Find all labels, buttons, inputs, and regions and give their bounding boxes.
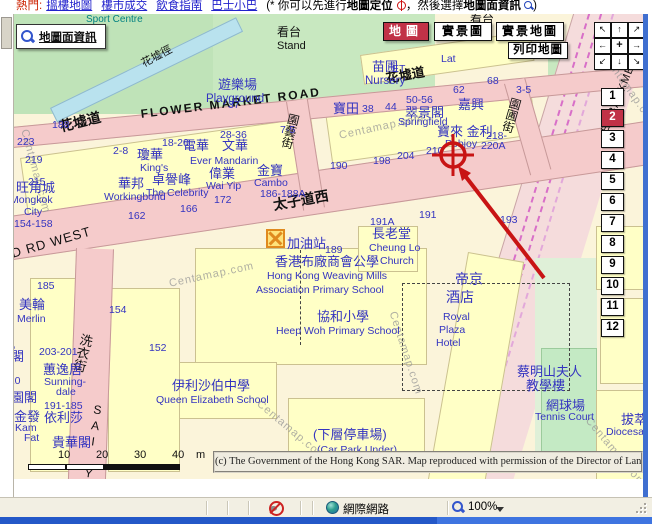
security-zone-label: 網際網路 — [343, 501, 389, 517]
zoom-level-button-11[interactable]: 11 — [601, 298, 624, 316]
scale-unit: m — [196, 449, 205, 461]
note-bold-locate: 地圖定位 — [347, 0, 393, 12]
note-bold-mapinfo: 地圖面資訊 — [463, 0, 521, 12]
zoom-level-button-12[interactable]: 12 — [601, 319, 624, 337]
crosshair-icon — [396, 0, 406, 10]
zoom-level-button-3[interactable]: 3 — [601, 130, 624, 148]
pan-button-2[interactable]: ↗ — [628, 22, 643, 38]
map-layer: Centamap.comCentamap.comCentamap.comCent… — [14, 14, 643, 479]
map-viewport[interactable]: Centamap.comCentamap.comCentamap.comCent… — [14, 14, 643, 479]
statusbar-separator — [248, 501, 250, 515]
internet-zone-icon — [326, 501, 339, 514]
pan-button-0[interactable]: ↖ — [594, 22, 611, 38]
zoom-level-button-6[interactable]: 6 — [601, 193, 624, 211]
statusbar-separator — [227, 501, 229, 515]
real-map-button[interactable]: 實景地圖 — [496, 22, 564, 41]
pan-button-4[interactable]: + — [611, 38, 628, 54]
popup-blocked-icon — [268, 500, 283, 515]
taskbar-segment — [437, 517, 652, 524]
statusbar-separator — [447, 501, 449, 515]
link-dining-guide[interactable]: 飲食指南 — [156, 0, 202, 12]
note-end: ) — [533, 0, 537, 12]
zoom-level-button-2[interactable]: 2 — [601, 109, 624, 127]
scale-tick: 10 — [58, 449, 70, 461]
zoom-dropdown-caret[interactable] — [496, 507, 504, 512]
status-bar: 網際網路 100% — [0, 497, 652, 517]
magnifier-icon — [21, 30, 35, 44]
top-links-bar: 熱門:搵樓地圖樓市成交飲食指南巴士小巴(* 你可以先進行地圖定位 ，然後選擇地圖… — [0, 0, 652, 14]
link-find-building-map[interactable]: 搵樓地圖 — [46, 0, 92, 12]
map-mode-button[interactable]: 地圖 — [383, 22, 429, 41]
pan-button-5[interactable]: → — [628, 38, 643, 54]
scale-segment — [66, 464, 104, 470]
scale-segment — [28, 464, 66, 470]
scale-tick: 40 — [172, 449, 184, 461]
print-map-button[interactable]: 列印地圖 — [508, 42, 568, 59]
copyright-bar: (c) The Government of the Hong Kong SAR.… — [213, 451, 643, 473]
pan-button-1[interactable]: ↑ — [611, 22, 628, 38]
map-info-label: 地圖面資訊 — [39, 29, 97, 45]
left-window-edge — [0, 14, 14, 497]
zoom-percent: 100% — [468, 501, 497, 513]
browser-window: 熱門:搵樓地圖樓市成交飲食指南巴士小巴(* 你可以先進行地圖定位 ，然後選擇地圖… — [0, 0, 652, 524]
note-pre: (* 你可以先進行 — [266, 0, 347, 12]
note-mid: ，然後選擇 — [406, 0, 464, 12]
scale-segment — [104, 464, 142, 470]
zoom-level-button-8[interactable]: 8 — [601, 235, 624, 253]
zoom-icon — [452, 501, 465, 514]
map-info-button[interactable]: 地圖面資訊 — [16, 24, 106, 49]
frame-divider-handle[interactable] — [1, 17, 12, 49]
search-icon — [524, 1, 533, 10]
zoom-level-button-10[interactable]: 10 — [601, 277, 624, 295]
scale-segment — [142, 464, 180, 470]
pan-button-6[interactable]: ↙ — [594, 54, 611, 70]
statusbar-separator — [206, 501, 208, 515]
resize-grip[interactable] — [636, 503, 648, 515]
link-property-transactions[interactable]: 樓市成交 — [101, 0, 147, 12]
zoom-level-button-5[interactable]: 5 — [601, 172, 624, 190]
zoom-level-button-7[interactable]: 7 — [601, 214, 624, 232]
statusbar-separator — [312, 501, 314, 515]
scale-tick: 20 — [96, 449, 108, 461]
real-view-button[interactable]: 實景圖 — [434, 22, 492, 41]
pan-button-7[interactable]: ↓ — [611, 54, 628, 70]
taskbar-sliver — [0, 517, 652, 524]
window-right-border — [643, 14, 648, 517]
scale-bar: 10203040m — [28, 449, 218, 474]
pan-button-3[interactable]: ← — [594, 38, 611, 54]
zoom-level-column: 123456789101112 — [601, 88, 625, 340]
link-bus-minibus[interactable]: 巴士小巴 — [211, 0, 257, 12]
pan-pad: ↖↑↗←+→↙↓↘ — [594, 22, 643, 70]
zoom-level-button-1[interactable]: 1 — [601, 88, 624, 106]
statusbar-separator — [300, 501, 302, 515]
pan-button-8[interactable]: ↘ — [628, 54, 643, 70]
location-marker — [14, 14, 643, 479]
scale-tick: 30 — [134, 449, 146, 461]
zoom-level-button-9[interactable]: 9 — [601, 256, 624, 274]
zoom-level-button-4[interactable]: 4 — [601, 151, 624, 169]
hot-label: 熱門: — [16, 0, 42, 12]
